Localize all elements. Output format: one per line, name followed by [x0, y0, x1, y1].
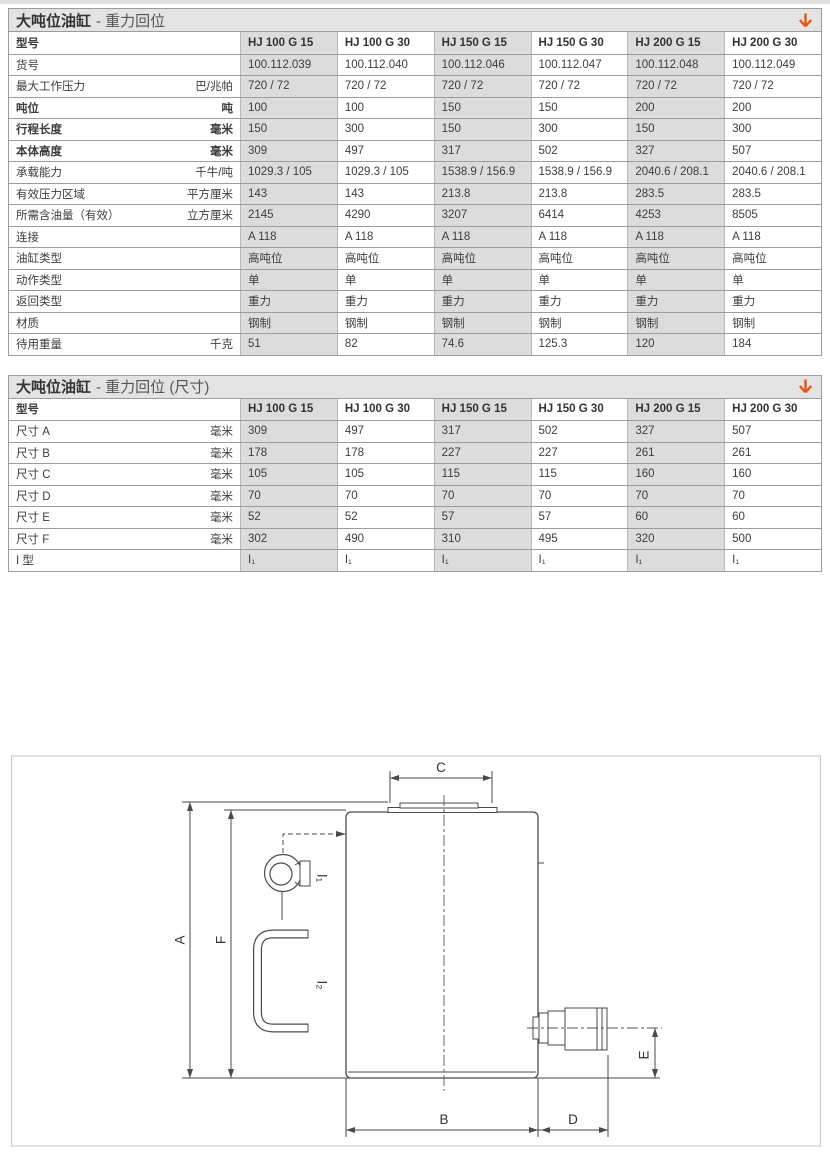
cell-value: 74.6	[434, 334, 531, 355]
row-label-cell: 承载能力千牛/吨	[9, 162, 240, 183]
table-row: 行程长度毫米150300150300150300	[9, 118, 821, 140]
column-header: HJ 200 G 15	[627, 32, 724, 54]
section-title-sub: - 重力回位	[96, 13, 165, 30]
dim-label-E: E	[637, 1050, 652, 1059]
cell-value: 115	[434, 464, 531, 485]
cell-value: 261	[627, 443, 724, 464]
down-arrow-icon[interactable]	[797, 378, 814, 395]
cell-value: 2145	[240, 205, 337, 226]
column-header: HJ 200 G 30	[724, 32, 821, 54]
row-label: 尺寸 D	[16, 488, 51, 504]
cell-value: 单	[240, 270, 337, 291]
table-row: 货号100.112.039100.112.040100.112.046100.1…	[9, 54, 821, 76]
cell-value: I₁	[337, 550, 434, 571]
eye-collar	[300, 861, 310, 886]
row-label-cell: 油缸类型	[9, 248, 240, 269]
down-arrow-icon[interactable]	[797, 12, 814, 29]
row-label: 尺寸 F	[16, 531, 49, 547]
cell-value: 重力	[240, 291, 337, 312]
row-unit: 平方厘米	[187, 186, 233, 202]
cell-value: 720 / 72	[724, 76, 821, 97]
cell-value: 1029.3 / 105	[240, 162, 337, 183]
model-header-cell: 型号	[9, 32, 240, 54]
cylinder-body	[346, 812, 538, 1078]
coupler-body	[565, 1008, 607, 1050]
model-header-cell: 型号	[9, 399, 240, 421]
cell-value: 100	[240, 98, 337, 119]
cell-value: A 118	[531, 227, 628, 248]
cell-value: I₁	[240, 550, 337, 571]
cell-value: A 118	[627, 227, 724, 248]
cell-value: 3207	[434, 205, 531, 226]
cell-value: 507	[724, 421, 821, 442]
row-unit: 立方厘米	[187, 207, 233, 223]
row-label: 行程长度	[16, 121, 62, 137]
column-header: HJ 100 G 30	[337, 32, 434, 54]
row-label-cell: 尺寸 E毫米	[9, 507, 240, 528]
cell-value: 57	[434, 507, 531, 528]
cell-value: 227	[531, 443, 628, 464]
cell-value: 2040.6 / 208.1	[724, 162, 821, 183]
cell-value: 钢制	[240, 313, 337, 334]
row-label: 油缸类型	[16, 250, 62, 266]
cell-value: 310	[434, 529, 531, 550]
cell-value: 115	[531, 464, 628, 485]
cell-value: 60	[627, 507, 724, 528]
cell-value: 320	[627, 529, 724, 550]
row-label-cell: I 型	[9, 550, 240, 571]
row-label: 最大工作压力	[16, 78, 85, 94]
cell-value: 502	[531, 141, 628, 162]
saddle-upper-plate	[400, 803, 478, 808]
cell-value: 720 / 72	[337, 76, 434, 97]
dimensions-title-bar: 大吨位油缸- 重力回位 (尺寸)	[9, 376, 821, 399]
row-label: I 型	[16, 552, 34, 568]
cell-value: 70	[337, 486, 434, 507]
row-label: 尺寸 E	[16, 509, 50, 525]
cell-value: 490	[337, 529, 434, 550]
table-row: 待用重量千克518274.6125.3120184	[9, 333, 821, 355]
row-label-cell: 待用重量千克	[9, 334, 240, 355]
row-label: 承载能力	[16, 164, 62, 180]
cell-value: 单	[627, 270, 724, 291]
cell-value: 钢制	[627, 313, 724, 334]
row-unit: 毫米	[210, 445, 233, 461]
table-row: 尺寸 B毫米178178227227261261	[9, 442, 821, 464]
section-title: 大吨位油缸- 重力回位	[16, 10, 165, 31]
cell-value: A 118	[724, 227, 821, 248]
row-label-cell: 连接	[9, 227, 240, 248]
cell-value: 57	[531, 507, 628, 528]
cell-value: 213.8	[434, 184, 531, 205]
cell-value: I₁	[627, 550, 724, 571]
row-unit: 毫米	[210, 531, 233, 547]
row-label: 吨位	[16, 100, 39, 116]
table-row: 最大工作压力巴/兆帕720 / 72720 / 72720 / 72720 / …	[9, 75, 821, 97]
cell-value: 283.5	[627, 184, 724, 205]
cell-value: 502	[531, 421, 628, 442]
row-label: 尺寸 B	[16, 445, 50, 461]
cell-value: 302	[240, 529, 337, 550]
table-row: 有效压力区域平方厘米143143213.8213.8283.5283.5	[9, 183, 821, 205]
cell-value: 327	[627, 141, 724, 162]
column-header: HJ 100 G 30	[337, 399, 434, 421]
cell-value: 52	[337, 507, 434, 528]
cell-value: 重力	[531, 291, 628, 312]
cell-value: 2040.6 / 208.1	[627, 162, 724, 183]
cell-value: 单	[434, 270, 531, 291]
row-label: 待用重量	[16, 336, 62, 352]
row-label: 材质	[16, 315, 39, 331]
table-row: 动作类型单单单单单单	[9, 269, 821, 291]
cell-value: 160	[627, 464, 724, 485]
cell-value: 120	[627, 334, 724, 355]
cell-value: 200	[724, 98, 821, 119]
cell-value: 单	[724, 270, 821, 291]
row-label: 连接	[16, 229, 39, 245]
cell-value: 200	[627, 98, 724, 119]
table-row: 尺寸 F毫米302490310495320500	[9, 528, 821, 550]
cell-value: 重力	[434, 291, 531, 312]
cell-value: 178	[240, 443, 337, 464]
row-label-cell: 尺寸 F毫米	[9, 529, 240, 550]
row-label-cell: 本体高度毫米	[9, 141, 240, 162]
label-I1: I₁	[315, 874, 330, 883]
dim-label-B: B	[439, 1112, 448, 1127]
cylinder-drawing: C B D A F E I₁ I₂	[0, 750, 830, 1150]
spec-table-section: 大吨位油缸- 重力回位 型号HJ 100 G 15HJ 100 G 30HJ 1…	[8, 8, 822, 356]
row-label-cell: 所需含油量（有效）立方厘米	[9, 205, 240, 226]
table-row: 吨位吨100100150150200200	[9, 97, 821, 119]
column-header: HJ 100 G 15	[240, 399, 337, 421]
row-label-cell: 材质	[9, 313, 240, 334]
section-title-sub: - 重力回位 (尺寸)	[96, 379, 209, 396]
dimensions-table: 型号HJ 100 G 15HJ 100 G 30HJ 150 G 15HJ 15…	[9, 399, 821, 571]
cell-value: 143	[337, 184, 434, 205]
cell-value: 高吨位	[337, 248, 434, 269]
dim-label-C: C	[436, 760, 446, 775]
cell-value: 钢制	[531, 313, 628, 334]
table-row: 尺寸 D毫米707070707070	[9, 485, 821, 507]
table-row: 尺寸 C毫米105105115115160160	[9, 463, 821, 485]
cell-value: 重力	[337, 291, 434, 312]
cell-value: 150	[434, 98, 531, 119]
row-unit: 吨	[222, 100, 234, 116]
row-unit: 毫米	[210, 121, 233, 137]
lifting-eye-inner	[270, 863, 292, 885]
table-row: 本体高度毫米309497317502327507	[9, 140, 821, 162]
cell-value: 51	[240, 334, 337, 355]
cell-value: 重力	[627, 291, 724, 312]
cell-value: 213.8	[531, 184, 628, 205]
cell-value: 309	[240, 421, 337, 442]
row-unit: 毫米	[210, 143, 233, 159]
cell-value: 317	[434, 421, 531, 442]
row-label-cell: 尺寸 B毫米	[9, 443, 240, 464]
row-label: 尺寸 A	[16, 423, 50, 439]
cell-value: 500	[724, 529, 821, 550]
cell-value: 4290	[337, 205, 434, 226]
cell-value: 70	[531, 486, 628, 507]
column-header: HJ 200 G 30	[724, 399, 821, 421]
table-row: 油缸类型高吨位高吨位高吨位高吨位高吨位高吨位	[9, 247, 821, 269]
label-I2: I₂	[315, 981, 330, 990]
row-label: 所需含油量（有效）	[16, 207, 120, 223]
table-row: 材质钢制钢制钢制钢制钢制钢制	[9, 312, 821, 334]
cell-value: A 118	[240, 227, 337, 248]
cell-value: 143	[240, 184, 337, 205]
cell-value: 125.3	[531, 334, 628, 355]
cell-value: 重力	[724, 291, 821, 312]
dimensions-table-section: 大吨位油缸- 重力回位 (尺寸) 型号HJ 100 G 15HJ 100 G 3…	[8, 375, 822, 572]
column-header: HJ 200 G 15	[627, 399, 724, 421]
cell-value: 100.112.048	[627, 55, 724, 76]
cell-value: 单	[337, 270, 434, 291]
row-label: 尺寸 C	[16, 466, 51, 482]
column-header: HJ 150 G 15	[434, 399, 531, 421]
cell-value: 钢制	[724, 313, 821, 334]
row-label: 返回类型	[16, 293, 62, 309]
cell-value: 高吨位	[724, 248, 821, 269]
table-row: 返回类型重力重力重力重力重力重力	[9, 290, 821, 312]
row-label-cell: 动作类型	[9, 270, 240, 291]
table-header-row: 型号HJ 100 G 15HJ 100 G 30HJ 150 G 15HJ 15…	[9, 32, 821, 54]
dim-label-D: D	[568, 1112, 578, 1127]
table-row: 所需含油量（有效）立方厘米214542903207641442538505	[9, 204, 821, 226]
table-row: I 型I₁I₁I₁I₁I₁I₁	[9, 549, 821, 571]
cell-value: 82	[337, 334, 434, 355]
cell-value: 单	[531, 270, 628, 291]
table-row: 尺寸 E毫米525257576060	[9, 506, 821, 528]
cell-value: 100.112.049	[724, 55, 821, 76]
cell-value: 150	[434, 119, 531, 140]
cell-value: 100.112.047	[531, 55, 628, 76]
cell-value: 70	[627, 486, 724, 507]
cell-value: 钢制	[434, 313, 531, 334]
cell-value: 8505	[724, 205, 821, 226]
row-unit: 毫米	[210, 509, 233, 525]
cell-value: 1538.9 / 156.9	[434, 162, 531, 183]
cell-value: 1029.3 / 105	[337, 162, 434, 183]
cell-value: A 118	[434, 227, 531, 248]
datasheet-content: 大吨位油缸- 重力回位 型号HJ 100 G 15HJ 100 G 30HJ 1…	[8, 8, 822, 572]
cell-value: 720 / 72	[627, 76, 724, 97]
dim-label-F: F	[214, 936, 229, 944]
section-title-main: 大吨位油缸	[16, 13, 91, 30]
column-header: HJ 150 G 30	[531, 32, 628, 54]
cell-value: 100.112.039	[240, 55, 337, 76]
cell-value: 283.5	[724, 184, 821, 205]
table-header-row: 型号HJ 100 G 15HJ 100 G 30HJ 150 G 15HJ 15…	[9, 399, 821, 421]
cell-value: 70	[724, 486, 821, 507]
cell-value: 497	[337, 141, 434, 162]
dim-label-A: A	[173, 935, 188, 944]
row-label: 货号	[16, 57, 39, 73]
cell-value: 钢制	[337, 313, 434, 334]
cell-value: I₁	[434, 550, 531, 571]
column-header: HJ 150 G 15	[434, 32, 531, 54]
table-row: 连接A 118A 118A 118A 118A 118A 118	[9, 226, 821, 248]
row-label-cell: 返回类型	[9, 291, 240, 312]
row-label-cell: 尺寸 D毫米	[9, 486, 240, 507]
cell-value: 70	[434, 486, 531, 507]
cell-value: 150	[627, 119, 724, 140]
cell-value: 60	[724, 507, 821, 528]
cell-value: 高吨位	[434, 248, 531, 269]
row-unit: 毫米	[210, 488, 233, 504]
cell-value: 227	[434, 443, 531, 464]
cell-value: 178	[337, 443, 434, 464]
cell-value: I₁	[531, 550, 628, 571]
cell-value: 720 / 72	[240, 76, 337, 97]
row-unit: 千克	[210, 336, 233, 352]
cell-value: 317	[434, 141, 531, 162]
column-header: HJ 100 G 15	[240, 32, 337, 54]
cell-value: 309	[240, 141, 337, 162]
row-unit: 巴/兆帕	[195, 78, 233, 94]
section-title-main: 大吨位油缸	[16, 379, 91, 396]
cell-value: 720 / 72	[531, 76, 628, 97]
spec-title-bar: 大吨位油缸- 重力回位	[9, 9, 821, 32]
cell-value: 105	[240, 464, 337, 485]
cell-value: 4253	[627, 205, 724, 226]
cell-value: 327	[627, 421, 724, 442]
cell-value: I₁	[724, 550, 821, 571]
row-unit: 千牛/吨	[195, 164, 233, 180]
cell-value: 184	[724, 334, 821, 355]
technical-diagram-svg: C B D A F E I₁ I₂	[0, 750, 830, 1150]
cell-value: 150	[531, 98, 628, 119]
cell-value: 6414	[531, 205, 628, 226]
cell-value: 497	[337, 421, 434, 442]
cell-value: 300	[531, 119, 628, 140]
table-row: 尺寸 A毫米309497317502327507	[9, 420, 821, 442]
cell-value: 100.112.046	[434, 55, 531, 76]
row-label: 有效压力区域	[16, 186, 85, 202]
column-header: HJ 150 G 30	[531, 399, 628, 421]
page-top-divider	[0, 0, 830, 4]
section-title: 大吨位油缸- 重力回位 (尺寸)	[16, 376, 209, 397]
cell-value: 261	[724, 443, 821, 464]
cell-value: 高吨位	[531, 248, 628, 269]
table-row: 承载能力千牛/吨1029.3 / 1051029.3 / 1051538.9 /…	[9, 161, 821, 183]
spec-table: 型号HJ 100 G 15HJ 100 G 30HJ 150 G 15HJ 15…	[9, 32, 821, 355]
cell-value: A 118	[337, 227, 434, 248]
cell-value: 高吨位	[627, 248, 724, 269]
row-label-cell: 尺寸 C毫米	[9, 464, 240, 485]
row-unit: 毫米	[210, 466, 233, 482]
row-label: 动作类型	[16, 272, 62, 288]
row-label-cell: 尺寸 A毫米	[9, 421, 240, 442]
cell-value: 1538.9 / 156.9	[531, 162, 628, 183]
cell-value: 105	[337, 464, 434, 485]
cell-value: 495	[531, 529, 628, 550]
row-label-cell: 货号	[9, 55, 240, 76]
row-label-cell: 最大工作压力巴/兆帕	[9, 76, 240, 97]
cell-value: 720 / 72	[434, 76, 531, 97]
cell-value: 507	[724, 141, 821, 162]
cell-value: 160	[724, 464, 821, 485]
cell-value: 150	[240, 119, 337, 140]
cell-value: 52	[240, 507, 337, 528]
row-label-cell: 有效压力区域平方厘米	[9, 184, 240, 205]
cell-value: 70	[240, 486, 337, 507]
cell-value: 300	[724, 119, 821, 140]
cell-value: 300	[337, 119, 434, 140]
cell-value: 高吨位	[240, 248, 337, 269]
row-label-cell: 行程长度毫米	[9, 119, 240, 140]
row-unit: 毫米	[210, 423, 233, 439]
cell-value: 100.112.040	[337, 55, 434, 76]
row-label: 本体高度	[16, 143, 62, 159]
row-label-cell: 吨位吨	[9, 98, 240, 119]
cell-value: 100	[337, 98, 434, 119]
